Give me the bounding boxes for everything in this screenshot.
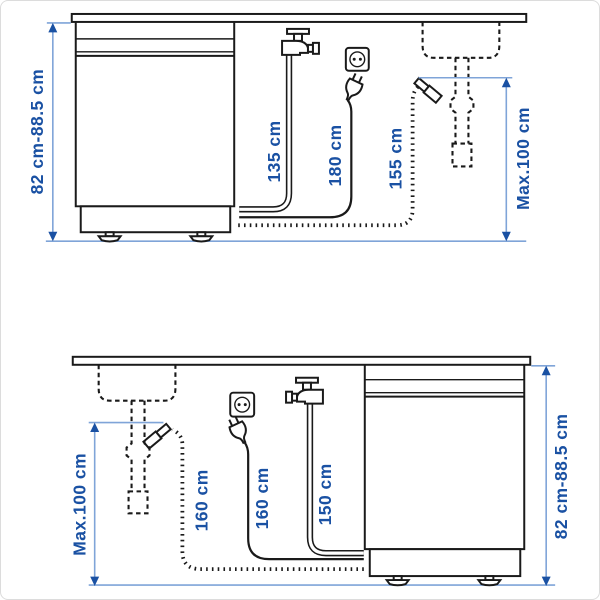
label-max-drain-height: Max.100 cm — [70, 453, 90, 556]
sink-icon — [99, 365, 176, 514]
label-height-range: 82 cm-88.5 cm — [27, 69, 47, 195]
power-plug-icon — [341, 72, 366, 103]
foot-icon — [478, 576, 500, 585]
label-power-cord-length: 180 cm — [325, 124, 345, 186]
drain-hose-connector-icon — [414, 77, 442, 102]
dimension-height-range: 82 cm-88.5 cm — [531, 366, 571, 586]
drain-hose-connector-icon — [143, 423, 171, 448]
faucet-icon — [282, 29, 319, 55]
dishwasher-icon — [365, 365, 524, 586]
label-height-range: 82 cm-88.5 cm — [551, 414, 571, 540]
foot-icon — [99, 232, 121, 241]
countertop — [73, 357, 530, 365]
power-plug-icon — [226, 415, 251, 446]
dishwasher-body — [76, 22, 234, 206]
dishwasher-installation-diagram: 82 cm-88.5 cm Max.100 cm 135 cm 180 cm 1… — [1, 1, 599, 599]
label-water-hose-length: 150 cm — [315, 463, 335, 525]
plinth — [370, 549, 520, 576]
foot-icon — [387, 576, 409, 585]
label-drain-hose-length: 160 cm — [191, 469, 211, 531]
dimension-height-range: 82 cm-88.5 cm — [27, 23, 71, 241]
countertop — [72, 14, 526, 22]
power-outlet-icon — [346, 48, 369, 71]
diagram-top: 82 cm-88.5 cm Max.100 cm 135 cm 180 cm 1… — [27, 14, 533, 241]
installation-diagram-page: 82 cm-88.5 cm Max.100 cm 135 cm 180 cm 1… — [0, 0, 600, 600]
label-drain-hose-length: 155 cm — [386, 127, 406, 189]
diagram-bottom: Max.100 cm 82 cm-88.5 cm 160 cm 160 cm 1… — [70, 357, 571, 586]
faucet-icon — [286, 378, 323, 404]
foot-icon — [190, 232, 212, 241]
label-water-hose-length: 135 cm — [264, 120, 284, 182]
label-max-drain-height: Max.100 cm — [513, 107, 533, 210]
plinth — [81, 206, 231, 232]
dishwasher-icon — [76, 22, 234, 242]
label-power-cord-length: 160 cm — [252, 467, 272, 529]
power-outlet-icon — [230, 393, 254, 417]
